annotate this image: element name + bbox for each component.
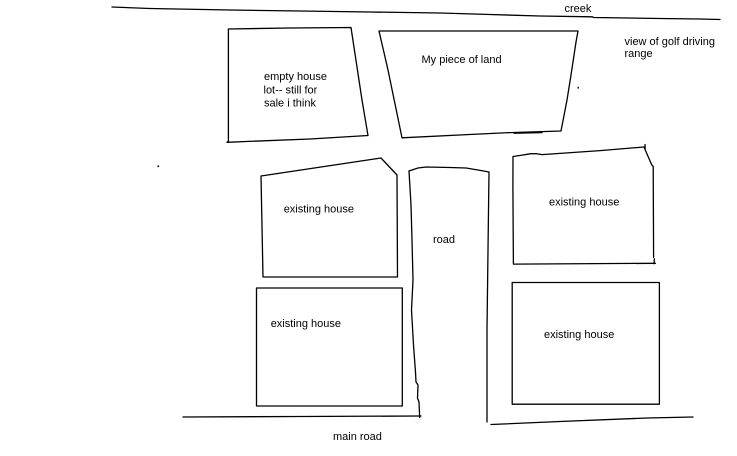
- svg-text:view of golf driving: view of golf driving: [625, 36, 716, 48]
- svg-text:road: road: [433, 234, 455, 246]
- svg-text:main road: main road: [333, 431, 382, 443]
- svg-text:lot-- still for: lot-- still for: [264, 84, 318, 96]
- svg-text:empty house: empty house: [264, 71, 327, 83]
- svg-text:range: range: [625, 48, 653, 60]
- svg-text:existing house: existing house: [549, 196, 619, 208]
- svg-text:existing house: existing house: [284, 204, 354, 216]
- svg-text:sale i think: sale i think: [264, 98, 316, 110]
- svg-text:existing house: existing house: [544, 329, 614, 341]
- svg-text:existing house: existing house: [271, 318, 341, 330]
- svg-text:My piece of land: My piece of land: [422, 54, 502, 66]
- svg-text:creek: creek: [565, 3, 592, 15]
